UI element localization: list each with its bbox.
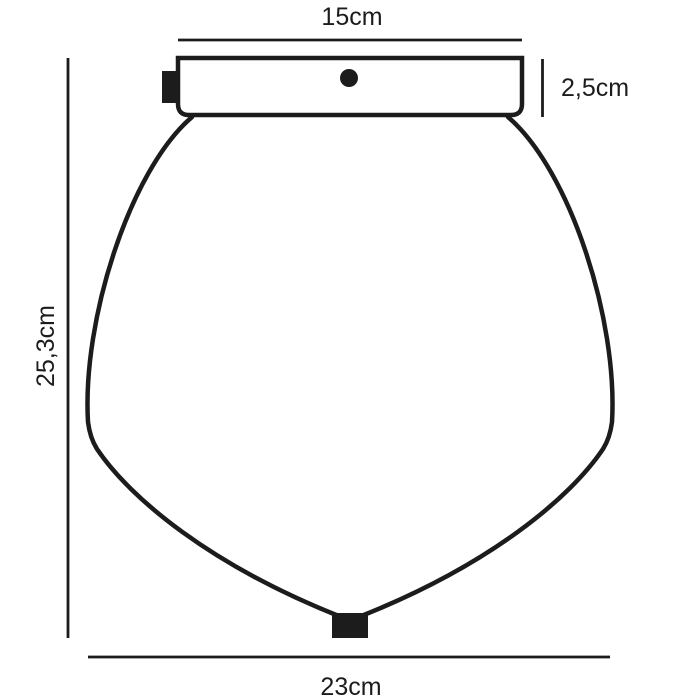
dim-label-top-width: 15cm — [321, 3, 382, 31]
dimension-drawing-page: 15cm 2,5cm 25,3cm 23cm — [0, 0, 700, 700]
bottom-finial — [332, 613, 368, 638]
lampshade-outline — [87, 117, 612, 617]
dim-label-total-height: 25,3cm — [32, 305, 60, 387]
screw-hole-dot — [340, 69, 358, 87]
dim-label-shade-width: 23cm — [320, 673, 381, 700]
side-connector-block — [162, 71, 178, 103]
dim-label-canopy-height: 2,5cm — [561, 74, 629, 102]
ceiling-lamp-dimension-diagram: 15cm 2,5cm 25,3cm 23cm — [0, 0, 700, 700]
